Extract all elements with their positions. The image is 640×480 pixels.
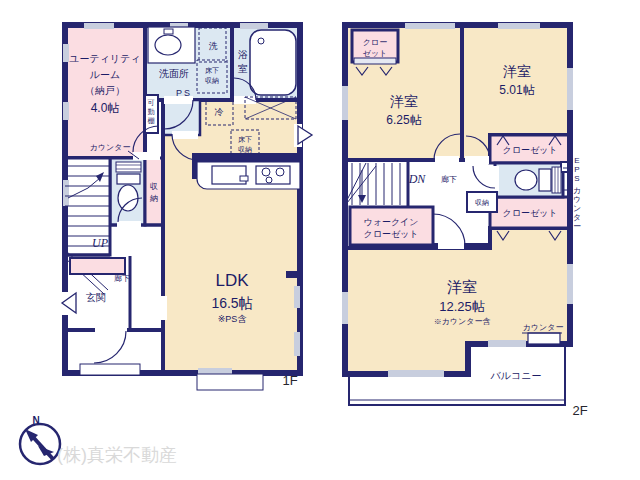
storage-2f-label: 収納 [475,199,489,206]
bath-label: 浴 [238,49,248,60]
utility-size: 4.0帖 [91,101,120,115]
side-counter-label: ウ [573,195,581,204]
side-counter-label: ー [573,222,581,231]
dn-label: DN [408,172,427,186]
entrance-label: 玄関 [86,292,106,303]
room-ldk [163,100,300,373]
hallway-1f-label: 廊下 [114,274,130,283]
side-counter-label: ン [573,204,581,213]
movable-shelf-label: 棚 [148,117,155,124]
counter-2f-label: カウンター [523,323,564,332]
utility-label: ユーティリティ [69,53,140,64]
laundry-label: 洗 [209,41,218,51]
ldk-opening-marker [298,126,312,144]
footer: N (株)真栄不動産 [20,415,177,465]
movable-shelf-label: 可 [148,99,155,106]
balcony-label: バルコニー [490,370,542,381]
shoe-cabinet [70,258,125,274]
washroom-label: 洗面所 [159,68,189,79]
closet-e2-label: クローゼット [502,208,557,218]
kitchen-stove [256,166,290,184]
eps-label: S [574,174,579,183]
underfloor-b-label: 収納 [238,146,252,153]
closet-e1-label: クローゼット [502,145,557,155]
floorplan-drawing: ユーティリティ ルーム （納戸） 4.0帖 洗面所 洗 浴 室 床下 収納 PS… [0,0,640,480]
compass-n-label: N [32,415,39,426]
utility-label: （納戸） [85,85,125,96]
porch-step [80,364,140,375]
underfloor-a-label: 床下 [205,67,219,74]
up-label: UP [92,236,109,250]
room-1225-size: 12.25帖 [439,299,485,314]
floor2-tag: 2F [572,403,587,418]
hallway-2f-label: 廊下 [441,175,457,184]
floor2-plan: クロー ゼット 洋室 6.25帖 洋室 5.01帖 クローゼット クローゼット … [342,23,588,418]
terrace-step [197,374,263,390]
floor1-plan: ユーティリティ ルーム （納戸） 4.0帖 洗面所 洗 浴 室 床下 収納 PS… [61,23,312,390]
side-counter-label: タ [573,213,581,222]
company-watermark: (株)真栄不動産 [57,445,177,465]
kitchen-faucet [240,176,248,181]
kitchen-counter [192,153,300,189]
room-1225-name: 洋室 [447,278,477,295]
floor1-tag: 1F [282,373,297,388]
bathtub [250,30,296,95]
fridge-label: 冷 [215,107,224,117]
wic-label: ウォークイン [363,217,418,227]
storage-1f-label: 納 [149,194,158,203]
storage-1f [145,158,163,225]
counter-label-1f: カウンター [90,143,131,152]
ps-label: PS [176,88,192,98]
room-501-name: 洋室 [503,63,531,79]
washbasin [148,27,195,63]
room-501-size: 5.01帖 [499,83,534,97]
underfloor-b-label: 床下 [238,136,252,143]
side-counter-label: カ [573,186,581,195]
floorplan-page: ユーティリティ ルーム （納戸） 4.0帖 洗面所 洗 浴 室 床下 収納 PS… [0,0,640,480]
wic-label: クローゼット [363,229,418,239]
compass-icon: N [20,415,60,464]
ldk-name: LDK [215,271,249,290]
utility-label: ルーム [90,69,120,80]
eps-label: E [574,156,579,165]
washroom-vestibule [163,100,200,135]
room-625-name: 洋室 [390,93,418,109]
underfloor-a-label: 収納 [205,77,219,84]
room-1225-note: ※カウンター含 [434,317,491,326]
closet-nw-label: クロー [363,38,387,47]
eps-label: P [574,165,579,174]
ldk-note: ※PS含 [218,314,247,324]
stairs-2f [347,163,400,205]
closet-nw-label: ゼット [363,49,388,58]
storage-1f-label: 収 [150,182,158,191]
bath-label: 室 [238,63,248,74]
movable-shelf-label: 動 [148,108,155,116]
ldk-size: 16.5帖 [211,295,252,311]
counter-2f [522,333,562,344]
room-625-size: 6.25帖 [386,113,421,127]
